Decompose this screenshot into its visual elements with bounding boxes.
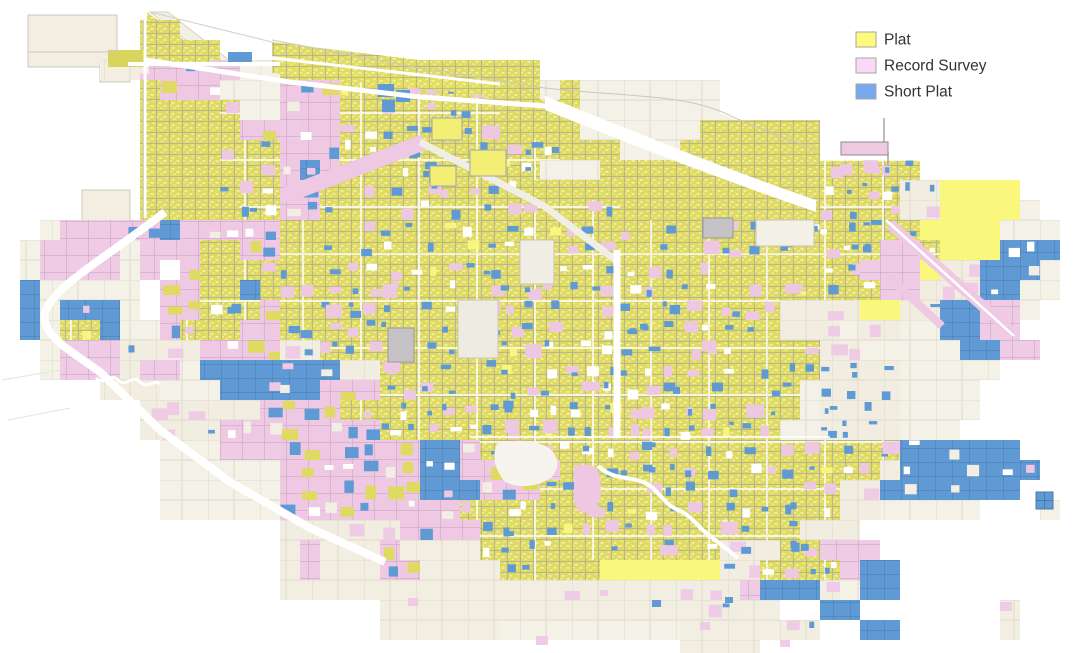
svg-text:Plat: Plat <box>884 32 911 49</box>
svg-text:Short Plat: Short Plat <box>884 84 953 101</box>
svg-text:Record Survey: Record Survey <box>884 58 987 75</box>
